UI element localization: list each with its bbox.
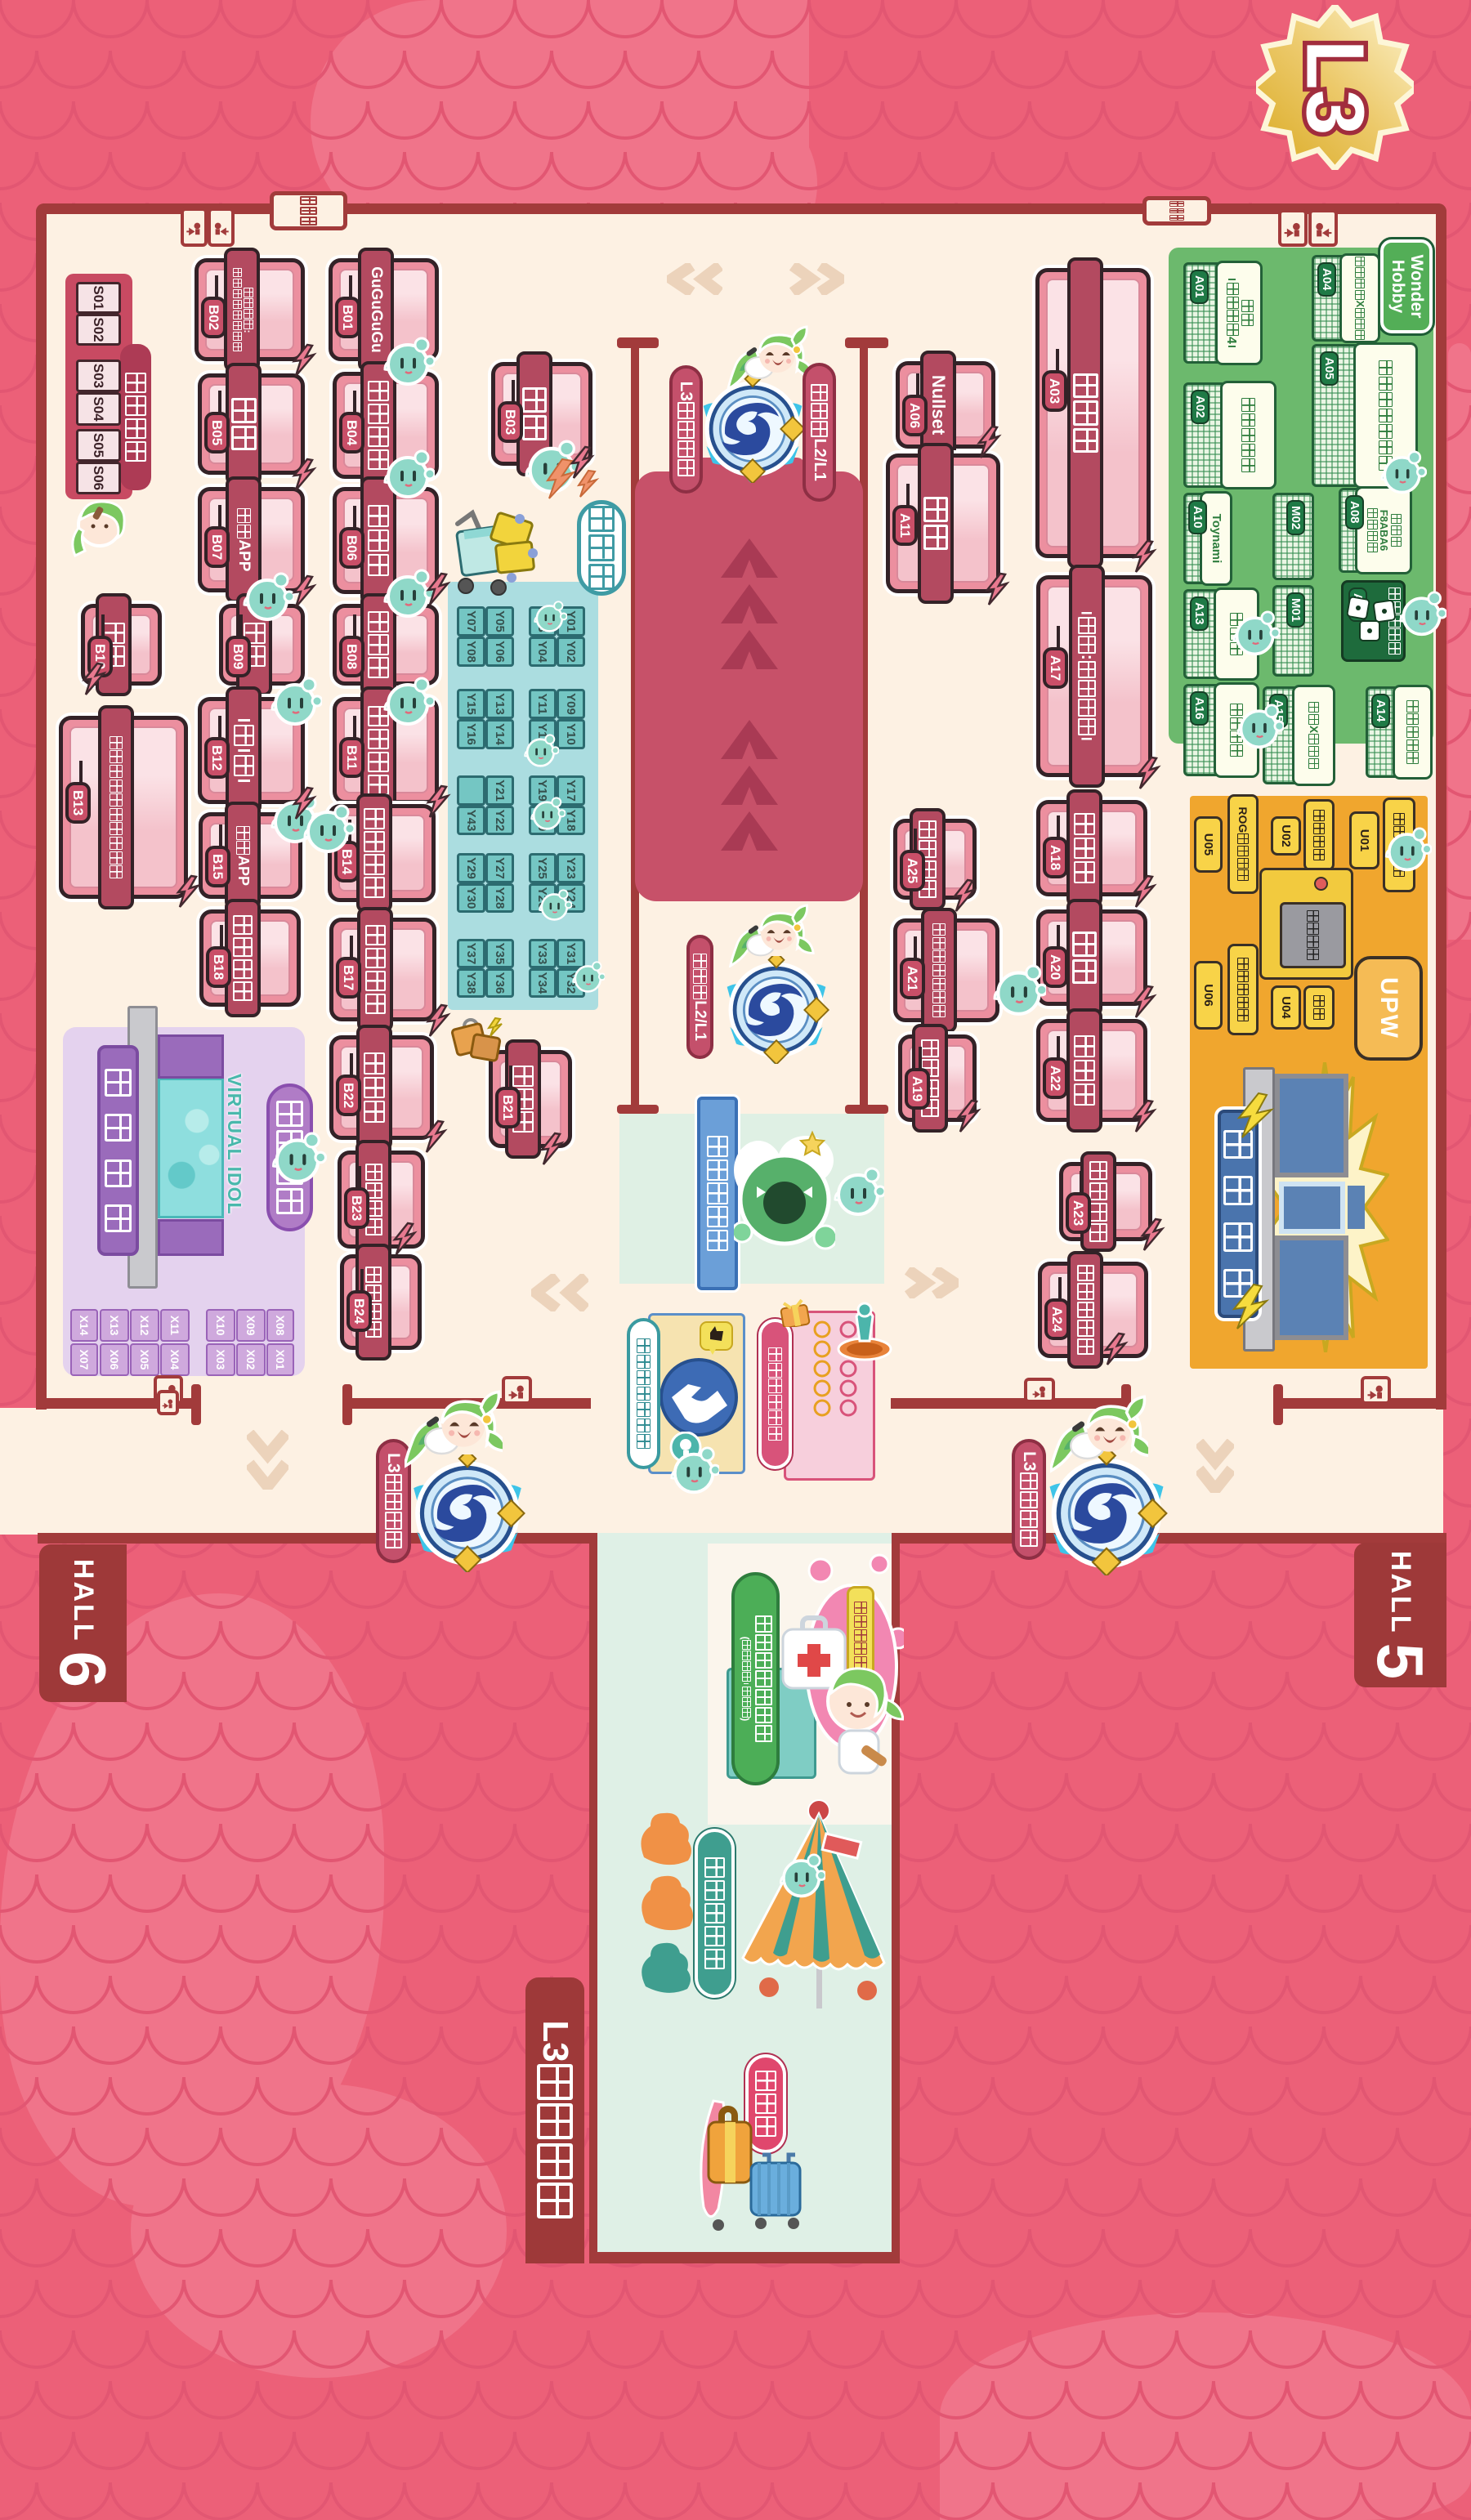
svg-text:L3: L3 xyxy=(1290,40,1381,136)
